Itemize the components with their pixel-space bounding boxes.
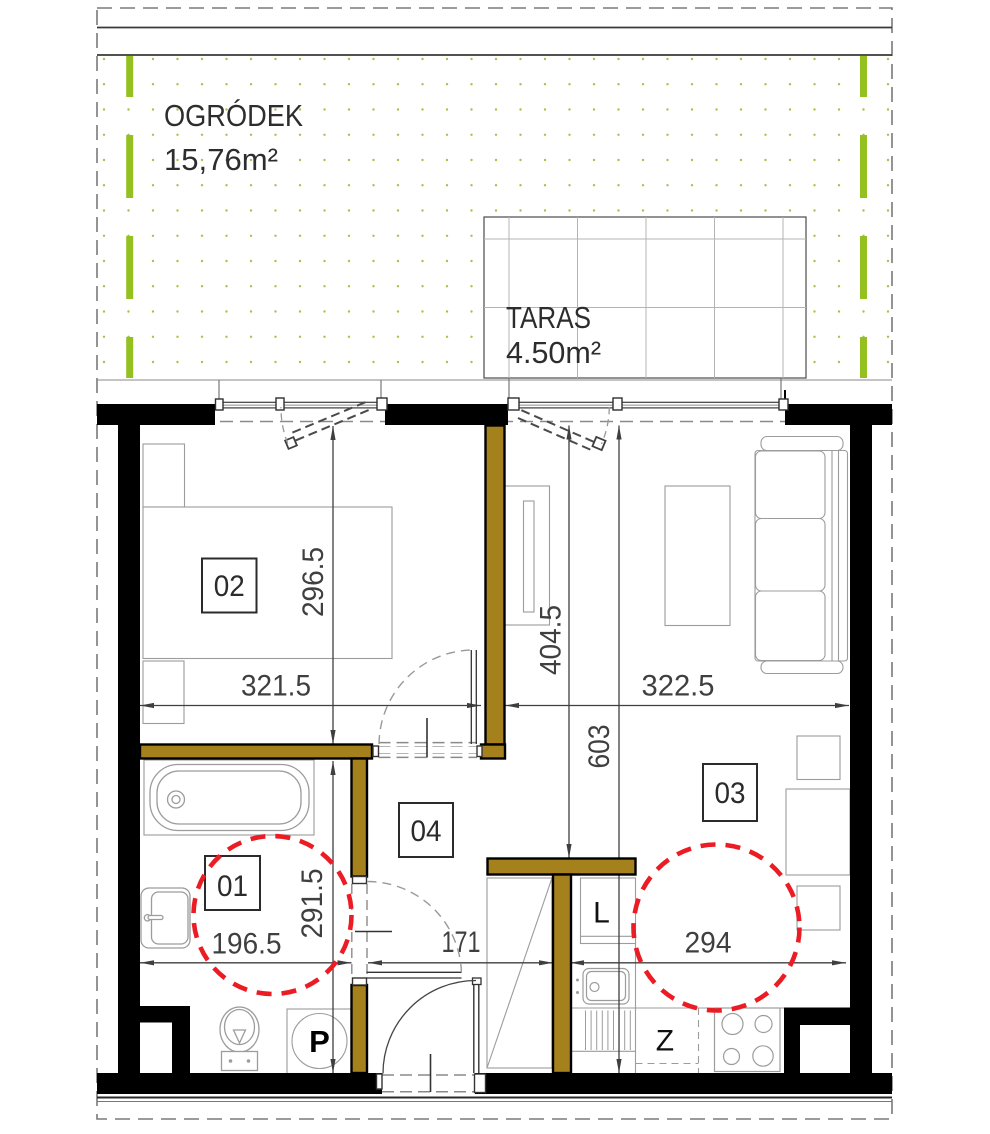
svg-text:404.5: 404.5 <box>535 605 568 675</box>
svg-text:321.5: 321.5 <box>241 670 311 703</box>
svg-text:01: 01 <box>217 870 248 903</box>
svg-text:603: 603 <box>583 725 616 769</box>
svg-text:322.5: 322.5 <box>642 670 715 703</box>
svg-text:TARAS: TARAS <box>506 300 591 335</box>
svg-text:4.50m²: 4.50m² <box>506 335 601 370</box>
svg-text:294: 294 <box>685 927 732 960</box>
svg-text:196.5: 196.5 <box>212 928 282 961</box>
svg-text:171: 171 <box>442 926 481 959</box>
svg-text:04: 04 <box>411 815 442 848</box>
svg-text:291.5: 291.5 <box>296 869 329 939</box>
svg-text:03: 03 <box>715 777 746 810</box>
svg-text:02: 02 <box>214 570 245 603</box>
svg-text:L: L <box>593 897 610 930</box>
svg-text:P: P <box>309 1024 330 1059</box>
svg-text:15,76m²: 15,76m² <box>164 142 278 177</box>
svg-text:OGRÓDEK: OGRÓDEK <box>164 98 303 133</box>
svg-text:296.5: 296.5 <box>297 547 330 617</box>
svg-text:Z: Z <box>656 1025 674 1058</box>
